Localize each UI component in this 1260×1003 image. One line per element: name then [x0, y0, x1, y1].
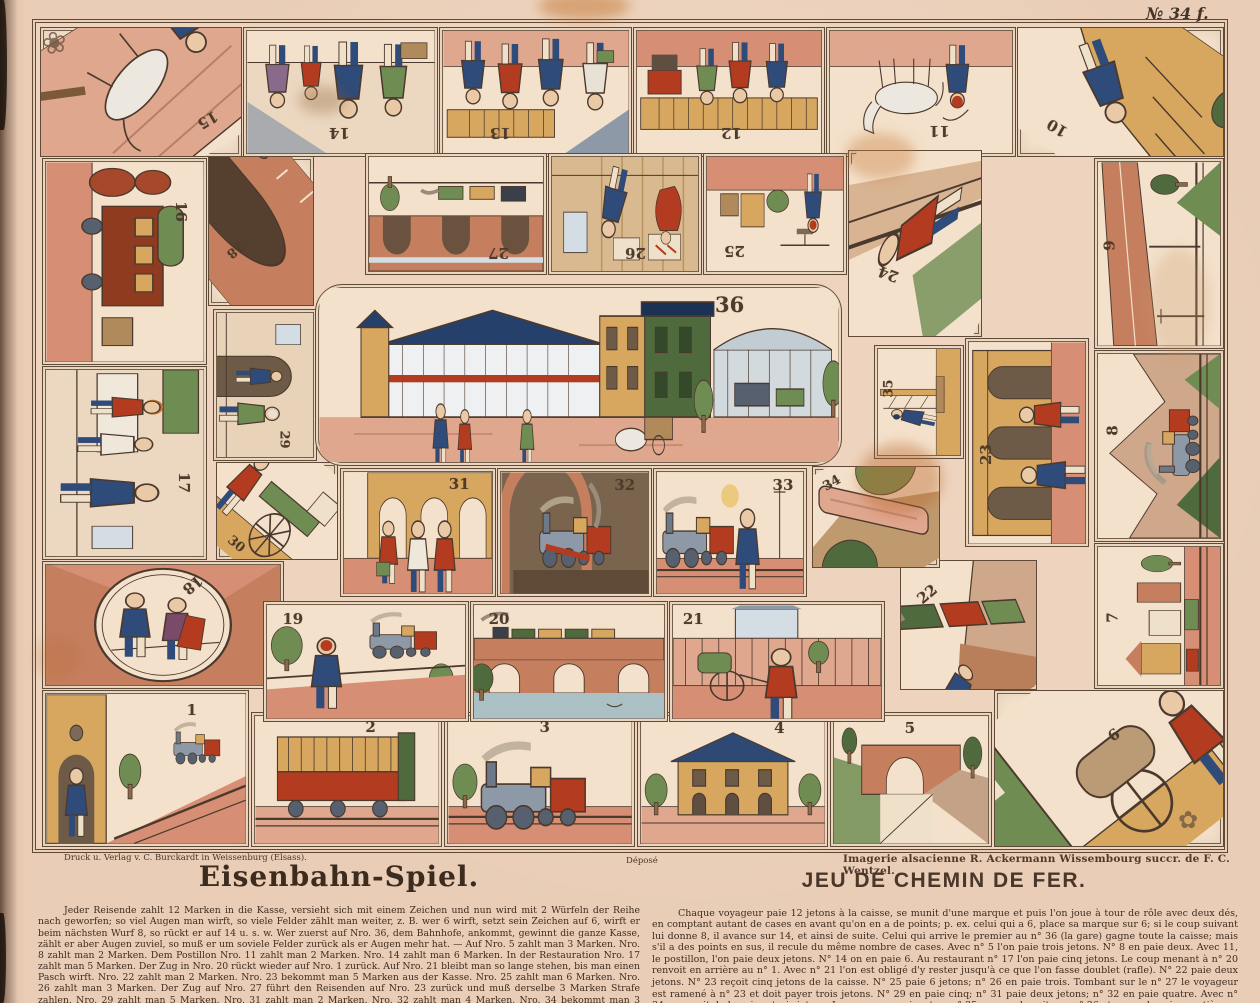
cell-number: 11: [929, 123, 950, 138]
board-cell-29: 29: [213, 309, 317, 461]
cell-number: 12: [721, 125, 742, 140]
cell-number: 25: [724, 243, 745, 258]
board-cell-7: 7: [1094, 543, 1224, 689]
cell-scene-arched-viaduct-train: [369, 157, 543, 271]
cell-scene-carriage-boarding: [969, 342, 1085, 543]
cell-number: 7: [1106, 613, 1121, 623]
paper-stain: [538, 0, 630, 20]
board-cell-11: 11: [826, 27, 1016, 157]
cell-scene-train-derailment: [900, 560, 1037, 690]
cell-scene-trackside-wall: [1098, 162, 1220, 345]
cell-number: 33: [773, 478, 794, 493]
board-cell-23: 23: [965, 338, 1089, 547]
board-cell-3: 3: [444, 712, 635, 847]
board-cell-18: 18: [42, 561, 284, 689]
rose-ornament-icon: ✿: [1178, 806, 1198, 834]
cell-scene-boy-with-handcart: [673, 605, 881, 718]
cell-number: 36: [715, 294, 744, 315]
cell-number: 19: [282, 612, 303, 627]
board-cell-19: 19: [263, 601, 469, 722]
board-cell-10: 10: [1017, 27, 1224, 157]
board-cell-8: 8: [1094, 350, 1224, 542]
plate-number: № 34 f.: [1146, 4, 1209, 23]
cell-scene-passenger-carriage: [255, 716, 438, 843]
cell-number: 4: [774, 721, 784, 736]
board-cell-4: 4: [637, 712, 828, 847]
cell-number: 32: [614, 478, 635, 493]
cell-number: 1: [187, 703, 197, 718]
board-cell-34: 34: [812, 466, 940, 568]
title-french: JEU DE CHEMIN DE FER.: [650, 869, 1238, 893]
cell-number: 16: [173, 201, 188, 222]
board-cell-30: 30: [216, 462, 338, 560]
cell-number: 17: [176, 472, 191, 493]
cell-scene-station-building: [641, 716, 824, 843]
board-cell-5: 5: [830, 712, 992, 847]
board-cell-35: 35: [874, 345, 964, 459]
cell-number: 2: [365, 720, 375, 735]
cell-number: 27: [488, 245, 509, 260]
cell-scene-horse-accident: [40, 27, 242, 157]
cell-scene-mountain-cutting-train: [1098, 354, 1220, 538]
cell-scene-station-bell-ringer: [46, 694, 245, 843]
cell-scene-travellers-walking: [443, 31, 628, 153]
board-cell-15: 15: [40, 27, 242, 157]
board-cell-24: 24: [848, 150, 982, 337]
board-cell-28: 28: [208, 156, 314, 306]
cell-number: 20: [489, 612, 510, 627]
rules-german: Jeder Reisende zahlt 12 Marken in die Ka…: [38, 905, 640, 1003]
board-cell-26: 26: [548, 153, 702, 275]
board-cell-14: 14: [243, 27, 438, 157]
cell-scene-tunnel-portal: [208, 156, 314, 306]
board-cell-17: 17: [42, 366, 207, 560]
board-cell-12: 12: [633, 27, 825, 157]
cell-number: 5: [905, 721, 915, 736]
cell-number: 31: [449, 477, 470, 492]
board-cell-16: 16: [42, 158, 207, 365]
cell-scene-arcade-travellers: [344, 472, 492, 593]
title-german: Eisenbahn-Spiel.: [38, 860, 640, 893]
board-cell-33: 33: [653, 468, 807, 597]
board-cell-20: 20: [470, 601, 668, 722]
cell-number: 13: [490, 125, 511, 140]
rules-french: Chaque voyageur paie 12 jetons à la cais…: [652, 908, 1238, 1003]
board-cell-31: 31: [340, 468, 496, 597]
cell-scene-platform-greeting: [46, 565, 280, 685]
board-cell-32: 32: [497, 468, 652, 597]
cell-scene-signal-climber: [878, 349, 960, 455]
board-cell-25: 25: [703, 153, 847, 275]
cell-scene-man-fallen-on-tracks: [848, 150, 982, 337]
cell-number: 26: [625, 245, 646, 260]
page-edge-shadow: [0, 0, 18, 1003]
cell-scene-station-buffet: [46, 370, 203, 556]
board-cell-22: 22: [900, 560, 1037, 690]
page-edge-tear: [0, 0, 7, 130]
cell-scene-postillion-horse: [830, 31, 1012, 153]
cell-number: 8: [1106, 425, 1121, 435]
cell-scene-freight-wagon: [46, 162, 203, 361]
board-cell-27: 27: [365, 153, 547, 275]
cell-number: 9: [1103, 241, 1118, 251]
board-cell-13: 13: [439, 27, 632, 157]
cell-number: 3: [540, 720, 550, 735]
cell-scene-central-railway-station: [319, 288, 838, 462]
cell-number: 23: [979, 444, 994, 465]
cell-number: 14: [329, 125, 350, 140]
board-cell-21: 21: [669, 601, 885, 722]
cell-scene-station-doorway: [217, 313, 313, 457]
board-cell-9: 9: [1094, 158, 1224, 349]
board-cell-36: 36: [315, 284, 842, 466]
board-cell-1: 1: [42, 690, 249, 847]
cell-number: 35: [883, 379, 896, 397]
page-edge-tear: [0, 913, 6, 1003]
cell-number: 21: [683, 612, 704, 627]
board-cell-2: 2: [251, 712, 442, 847]
cell-scene-embankment-fall: [1017, 27, 1224, 157]
cell-number: 29: [278, 430, 291, 448]
game-sheet: 1234567891011121314151617181920212223242…: [0, 0, 1260, 1003]
